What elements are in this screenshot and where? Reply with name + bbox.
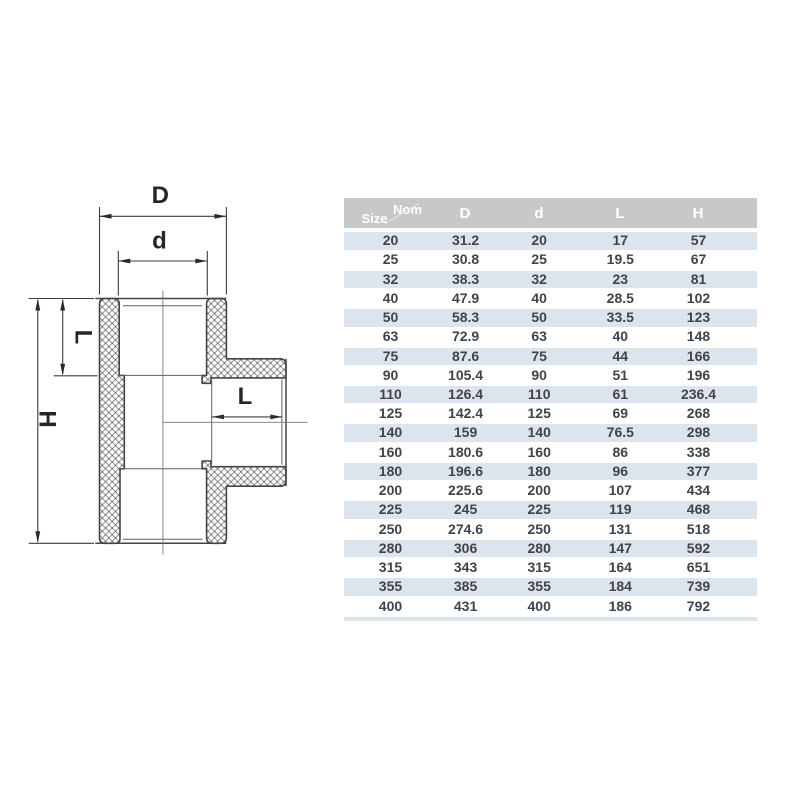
svg-text:d: d: [152, 227, 167, 254]
svg-text:L: L: [238, 383, 253, 410]
svg-text:D: D: [152, 182, 169, 209]
svg-text:H: H: [33, 410, 60, 427]
svg-text:L: L: [69, 330, 96, 345]
